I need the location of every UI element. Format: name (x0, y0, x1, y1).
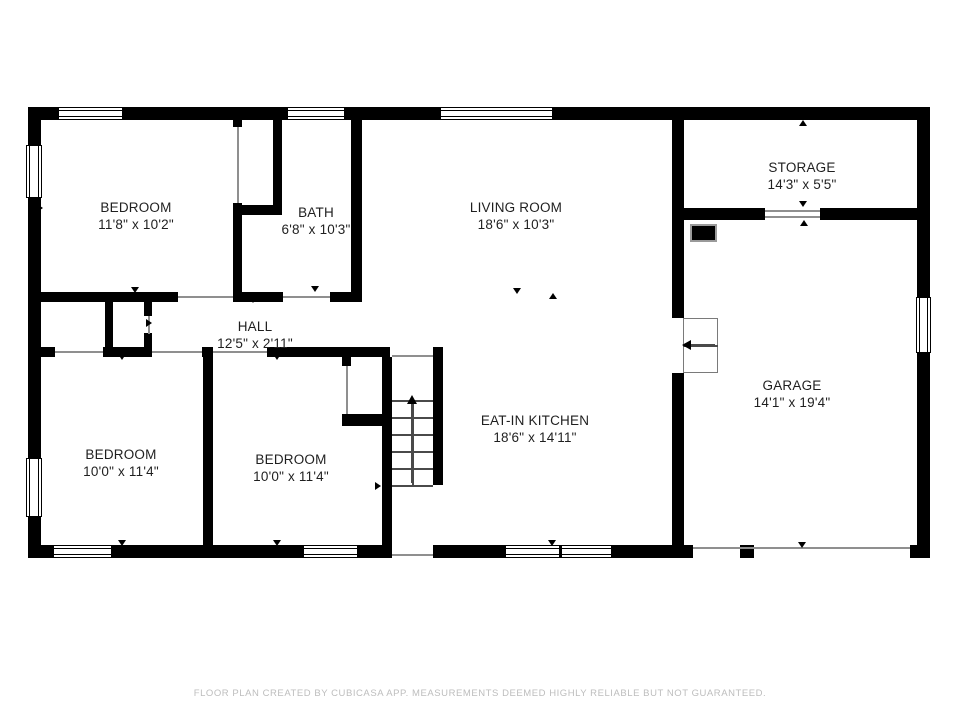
window (287, 107, 345, 120)
door-direction-marker (37, 204, 43, 212)
room-name: HALL (217, 318, 293, 335)
room-name: BEDROOM (98, 199, 174, 216)
stair-up-arrow-icon (407, 395, 417, 404)
wall-segment (233, 292, 283, 302)
room-label-bedroom-bottom-middle: BEDROOM10'0" x 11'4" (253, 451, 329, 485)
room-dimensions: 14'3" x 5'5" (768, 176, 837, 193)
room-label-bedroom-top-left: BEDROOM11'8" x 10'2" (98, 199, 174, 233)
wall-segment (382, 357, 392, 558)
wall-segment (105, 302, 113, 347)
door-direction-marker (549, 293, 557, 299)
room-label-garage: GARAGE14'1" x 19'4" (754, 377, 831, 411)
room-name: BEDROOM (83, 446, 159, 463)
wall-segment (612, 545, 693, 558)
window-pane-lines (441, 110, 552, 117)
room-dimensions: 11'8" x 10'2" (98, 216, 174, 233)
wall-segment (112, 545, 303, 558)
window (58, 107, 123, 120)
door-opening-line (283, 296, 330, 298)
wall-segment (433, 347, 443, 485)
door-opening-line (152, 351, 202, 353)
room-dimensions: 18'6" x 14'11" (481, 429, 589, 446)
door-direction-marker (375, 482, 381, 490)
door-direction-marker (798, 542, 806, 548)
door-opening-line (765, 216, 820, 218)
window (440, 107, 553, 120)
door-direction-marker (677, 380, 683, 388)
door-opening-line (392, 355, 433, 357)
wall-segment (273, 120, 282, 215)
window (26, 458, 42, 517)
door-direction-marker (273, 540, 281, 546)
stair-arrow-stem (411, 404, 413, 483)
room-name: EAT-IN KITCHEN (481, 412, 589, 429)
door-direction-marker (273, 354, 281, 360)
door-direction-marker (353, 249, 359, 257)
wall-segment (342, 357, 351, 366)
door-direction-marker (513, 288, 521, 294)
door-direction-marker (249, 297, 257, 303)
door-opening-line (237, 127, 239, 203)
door-opening-line (346, 366, 348, 414)
door-opening-line (178, 296, 233, 298)
wall-segment (28, 107, 41, 145)
wall-segment (345, 107, 440, 120)
door-direction-marker (118, 354, 126, 360)
wall-segment (233, 203, 242, 302)
window-mullion (559, 546, 562, 557)
room-label-bedroom-bottom-left: BEDROOM10'0" x 11'4" (83, 446, 159, 480)
wall-segment (202, 347, 213, 357)
room-dimensions: 10'0" x 11'4" (253, 468, 329, 485)
door-direction-marker (311, 286, 319, 292)
door-opening-line (392, 554, 433, 556)
door-opening-line (765, 210, 820, 212)
room-name: GARAGE (754, 377, 831, 394)
wall-segment (553, 107, 930, 120)
room-dimensions: 6'8" x 10'3" (282, 221, 351, 238)
door-direction-marker (548, 540, 556, 546)
room-dimensions: 12'5" x 2'11" (217, 335, 293, 352)
wall-segment (123, 107, 287, 120)
door-direction-marker (800, 220, 808, 226)
room-dimensions: 10'0" x 11'4" (83, 463, 159, 480)
water-heater (690, 224, 717, 242)
garage-step-arrow-stem (690, 344, 715, 346)
door-direction-marker (799, 120, 807, 126)
window-pane-lines (29, 146, 39, 197)
door-direction-marker (799, 201, 807, 207)
door-direction-marker (918, 376, 924, 384)
wall-segment (672, 373, 684, 545)
wall-segment (433, 545, 505, 558)
room-name: BEDROOM (253, 451, 329, 468)
window-pane-lines (29, 459, 39, 516)
wall-segment (910, 545, 930, 558)
door-direction-marker (918, 159, 924, 167)
room-label-bath: BATH6'8" x 10'3" (282, 204, 351, 238)
wall-segment (672, 120, 684, 318)
window-pane-lines (919, 298, 928, 352)
room-label-living-room: LIVING ROOM18'6" x 10'3" (470, 199, 562, 233)
wall-segment (684, 208, 765, 220)
wall-segment (33, 292, 178, 302)
wall-segment (917, 107, 930, 297)
wall-segment (330, 292, 362, 302)
stair-tread-line (392, 485, 433, 487)
garage-step-arrow-icon (682, 340, 691, 350)
wall-segment (103, 347, 152, 357)
wall-segment (28, 545, 53, 558)
room-label-storage: STORAGE14'3" x 5'5" (768, 159, 837, 193)
window-pane-lines (54, 548, 111, 555)
window-pane-lines (288, 110, 344, 117)
window-pane-lines (304, 548, 357, 555)
room-dimensions: 14'1" x 19'4" (754, 394, 831, 411)
wall-segment (233, 205, 282, 215)
window (26, 145, 42, 198)
wall-segment (233, 120, 242, 127)
window (53, 545, 112, 558)
window (303, 545, 358, 558)
window (505, 545, 612, 558)
wall-segment (144, 333, 152, 347)
door-direction-marker (146, 319, 152, 327)
room-dimensions: 18'6" x 10'3" (470, 216, 562, 233)
room-name: LIVING ROOM (470, 199, 562, 216)
footer-disclaimer: FLOOR PLAN CREATED BY CUBICASA APP. MEAS… (0, 688, 960, 699)
window-pane-lines (59, 110, 122, 117)
wall-segment (28, 198, 41, 458)
room-label-hall: HALL12'5" x 2'11" (217, 318, 293, 352)
wall-segment (33, 347, 55, 357)
floor-plan: FLOOR PLAN CREATED BY CUBICASA APP. MEAS… (0, 0, 960, 720)
room-label-eat-in-kitchen: EAT-IN KITCHEN18'6" x 14'11" (481, 412, 589, 446)
wall-segment (351, 120, 362, 302)
room-name: STORAGE (768, 159, 837, 176)
wall-segment (820, 208, 917, 220)
window (916, 297, 931, 353)
door-opening-line (55, 351, 103, 353)
door-direction-marker (131, 287, 139, 293)
room-name: BATH (282, 204, 351, 221)
wall-segment (203, 357, 213, 545)
door-direction-marker (118, 540, 126, 546)
wall-segment (144, 302, 152, 316)
